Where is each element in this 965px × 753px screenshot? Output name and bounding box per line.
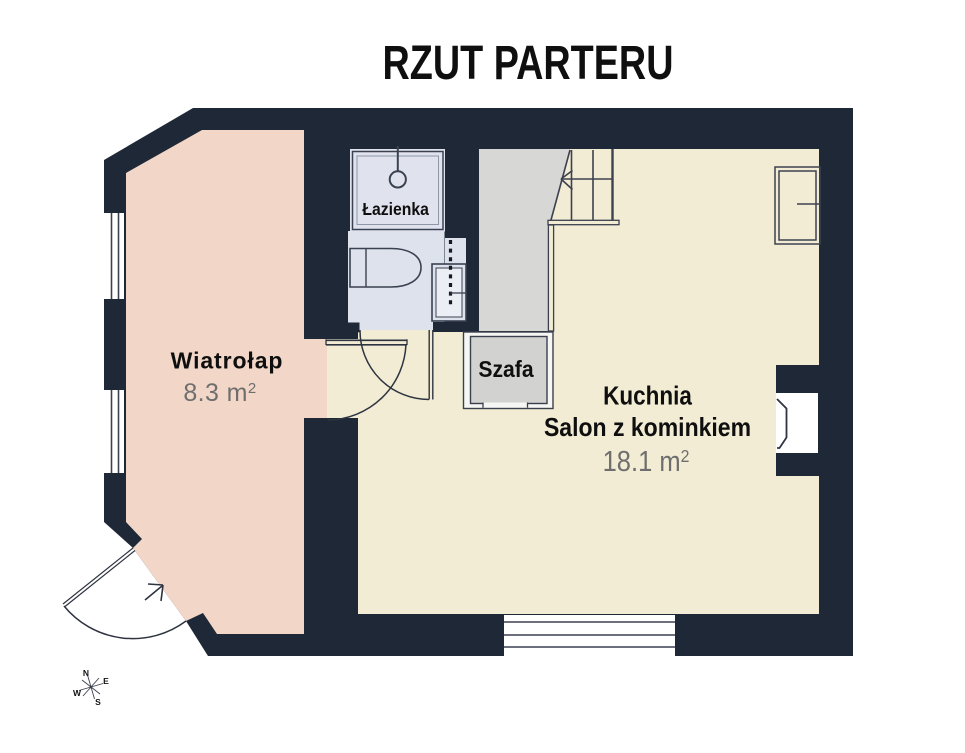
svg-text:Wiatrołap: Wiatrołap (171, 348, 284, 374)
svg-text:E: E (103, 676, 109, 686)
svg-text:S: S (95, 697, 101, 707)
svg-text:Salon z kominkiem: Salon z kominkiem (544, 414, 751, 443)
svg-text:Kuchnia: Kuchnia (603, 382, 692, 411)
svg-text:8.3 m2: 8.3 m2 (183, 379, 256, 407)
svg-text:W: W (73, 688, 82, 698)
svg-text:Szafa: Szafa (478, 356, 534, 382)
svg-text:Łazienka: Łazienka (362, 199, 429, 219)
svg-text:N: N (83, 668, 89, 678)
svg-text:18.1 m2: 18.1 m2 (603, 444, 690, 477)
svg-text:RZUT PARTERU: RZUT PARTERU (383, 37, 674, 90)
